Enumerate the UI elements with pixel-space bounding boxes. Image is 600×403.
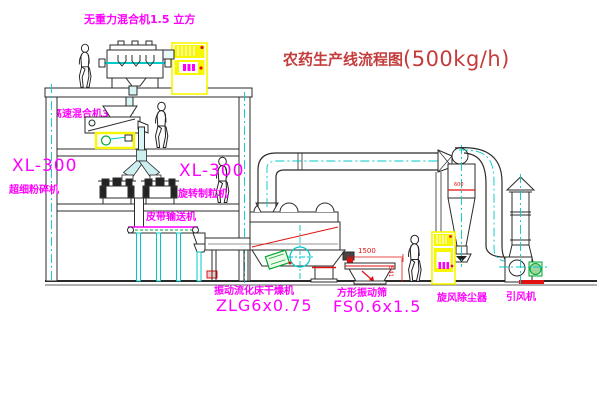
title-capacity: (500kg/h): [403, 47, 510, 71]
person-ground-floor: [409, 235, 422, 281]
label-belt-conveyor: 皮带输送机: [146, 213, 196, 223]
label-left-unit-model: XL-300: [12, 158, 77, 175]
indicator-dot: [200, 46, 203, 49]
dimension-cyclone-width: 600: [454, 183, 464, 188]
high-speed-mixer: [85, 97, 148, 155]
label-left-unit-name: 超细粉碎机: [9, 186, 59, 196]
diagram-title: 农药生产线流程图(500kg/h): [283, 47, 510, 71]
label-cyclone: 旋风除尘器: [437, 294, 487, 304]
label-screen-model: FS0.6x1.5: [333, 299, 421, 315]
gravity-free-mixer: [99, 41, 174, 95]
belt-conveyor: [128, 227, 208, 281]
square-vibrating-screen: [343, 252, 403, 284]
label-fan: 引风机: [506, 293, 536, 303]
dimension-screen-length: 1500: [358, 248, 376, 255]
cad-flow-diagram: 高速混合机3立方: [0, 0, 600, 403]
control-cabinet-ground: [432, 232, 455, 284]
fluid-bed-dryer: [205, 203, 345, 282]
granulator-right: [141, 178, 179, 204]
person-top-floor: [79, 44, 91, 87]
cabinet-display-glyph: [439, 262, 450, 269]
cabinet-display-glyph: [183, 64, 195, 71]
label-granulator-name: 旋转制粒机: [178, 190, 228, 200]
induced-draft-fan: [499, 174, 549, 284]
dimension-screen-height: 541: [387, 266, 393, 277]
label-granulator-model: XL-300: [179, 163, 244, 180]
label-dryer-model: ZLG6x0.75: [216, 298, 313, 314]
control-cabinet-top: [172, 43, 207, 94]
title-text: 农药生产线流程图: [283, 51, 403, 69]
label-gravity-free-mixer: 无重力混合机1.5 立方: [84, 14, 195, 25]
granulator-left: [98, 178, 136, 204]
person-second-floor: [156, 102, 168, 147]
